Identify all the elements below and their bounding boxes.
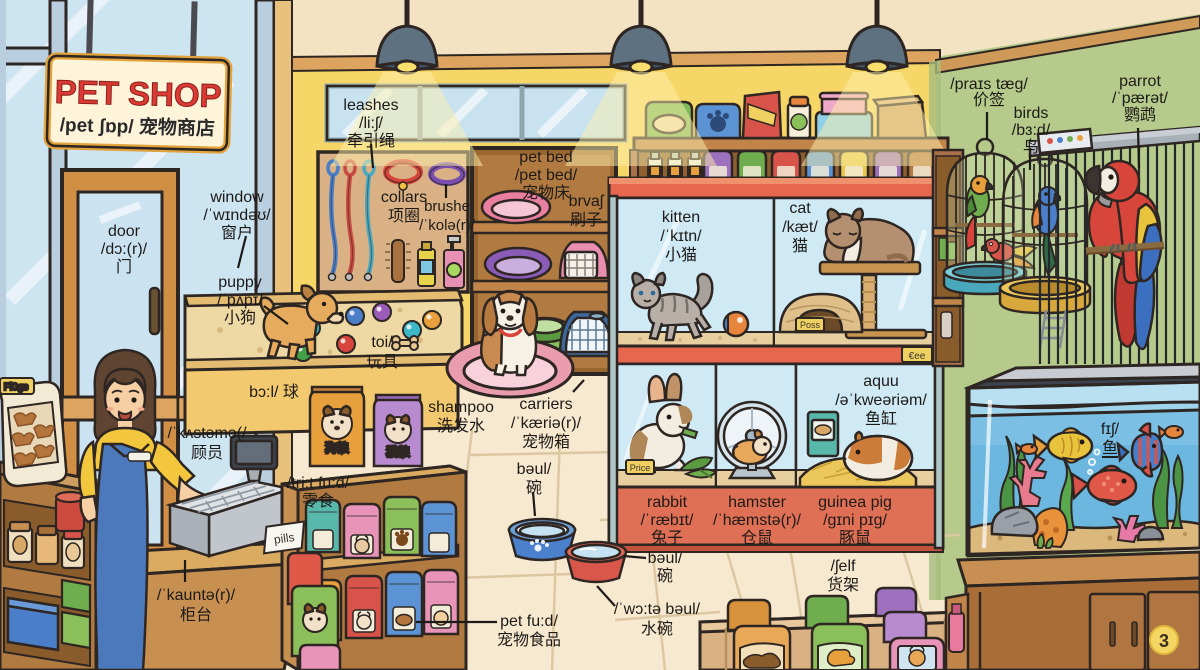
svg-text:Poss: Poss — [800, 320, 821, 330]
svg-text:玩具: 玩具 — [366, 354, 398, 371]
svg-text:guinea pig: guinea pig — [818, 494, 892, 511]
svg-text:door: door — [108, 223, 141, 240]
svg-text:kitten: kitten — [662, 209, 700, 226]
svg-text:/ˈkʌstəmə(/: /ˈkʌstəmə(/ — [167, 425, 247, 442]
svg-text:豚鼠: 豚鼠 — [839, 529, 871, 547]
svg-text:/ʃelf: /ʃelf — [831, 558, 856, 575]
svg-text:aquu: aquu — [863, 373, 899, 390]
svg-text:小狗: 小狗 — [224, 309, 256, 327]
svg-text:/praɪs tæg/: /praɪs tæg/ — [950, 76, 1028, 93]
svg-text:/ˈkæriə(r)/: /ˈkæriə(r)/ — [511, 415, 582, 432]
svg-text:cat: cat — [789, 200, 811, 217]
svg-text:bəul/: bəul/ — [517, 461, 552, 478]
svg-text:3: 3 — [1159, 631, 1169, 651]
svg-text:/gɪni pɪg/: /gɪni pɪg/ — [823, 512, 887, 529]
svg-text:项圈: 项圈 — [388, 207, 420, 225]
svg-text:/ˈwɪndəʊ/: /ˈwɪndəʊ/ — [203, 207, 271, 224]
svg-text:零食: 零食 — [302, 492, 334, 510]
svg-text:窗户: 窗户 — [221, 224, 253, 242]
svg-text:bəul/: bəul/ — [648, 550, 683, 567]
svg-text:Fl0gs: Fl0gs — [4, 382, 28, 393]
svg-text:/tri:t fu:d/: /tri:t fu:d/ — [287, 475, 350, 492]
svg-text:collars: collars — [381, 189, 427, 206]
svg-text:/ˈpærət/: /ˈpærət/ — [1112, 90, 1169, 107]
svg-text:brvaʃ: brvaʃ — [569, 193, 605, 210]
svg-text:/ˈpʌpɪ/: /ˈpʌpɪ/ — [217, 292, 263, 309]
svg-text:Price: Price — [630, 463, 651, 473]
svg-text:猫粮: 猫粮 — [386, 444, 410, 459]
svg-text:牵引绳: 牵引绳 — [347, 132, 395, 150]
svg-text:/li:ʃ/: /li:ʃ/ — [359, 115, 384, 132]
svg-text:宠物床: 宠物床 — [522, 184, 570, 202]
svg-text:rabbit: rabbit — [647, 494, 688, 511]
svg-text:€ee: €ee — [909, 351, 926, 362]
svg-text:window: window — [209, 189, 264, 206]
svg-text:parrot: parrot — [1119, 73, 1161, 90]
svg-text:carriers: carriers — [519, 396, 572, 413]
svg-text:狗粮: 狗粮 — [325, 440, 349, 455]
svg-text:价签: 价签 — [973, 91, 1005, 109]
svg-text:门: 门 — [116, 258, 132, 276]
svg-text:/ˈkolə(r)/: /ˈkolə(r)/ — [419, 217, 476, 234]
svg-text:柜台: 柜台 — [180, 606, 212, 624]
svg-text:pet bed: pet bed — [519, 149, 572, 166]
svg-text:/pet bed/: /pet bed/ — [515, 167, 578, 184]
svg-text:顾员: 顾员 — [191, 444, 223, 462]
svg-text:兔子: 兔子 — [651, 529, 683, 547]
svg-text:leashes: leashes — [343, 97, 398, 114]
svg-text:水碗: 水碗 — [641, 620, 673, 638]
svg-text:宠物食品: 宠物食品 — [497, 631, 561, 649]
svg-text:/əˈkweəriəm/: /əˈkweəriəm/ — [835, 392, 927, 409]
svg-text:/ˈkɪtn/: /ˈkɪtn/ — [660, 228, 702, 245]
svg-text:/dɔ:(r)/: /dɔ:(r)/ — [101, 241, 148, 258]
svg-text:刷子: 刷子 — [570, 211, 602, 229]
svg-text:宠物箱: 宠物箱 — [522, 433, 570, 451]
svg-text:碗: 碗 — [526, 479, 542, 497]
svg-text:仓鼠: 仓鼠 — [741, 529, 773, 547]
svg-text:pet fu:d/: pet fu:d/ — [500, 613, 558, 630]
svg-text:鹦鹉: 鹦鹉 — [1124, 106, 1156, 124]
svg-text:pills: pills — [273, 530, 295, 547]
svg-text:toi/: toi/ — [371, 334, 393, 351]
svg-text:洗发水: 洗发水 — [437, 417, 485, 435]
svg-text:/ˈwɔ:tə bəul/: /ˈwɔ:tə bəul/ — [614, 601, 701, 618]
svg-text:鱼: 鱼 — [1102, 439, 1118, 457]
svg-text:猫: 猫 — [792, 237, 808, 255]
svg-text:shampoo: shampoo — [428, 399, 494, 416]
svg-text:bɔ:l/ 球: bɔ:l/ 球 — [249, 383, 299, 401]
svg-text:hamster: hamster — [728, 494, 786, 511]
svg-text:鱼缸: 鱼缸 — [865, 409, 897, 428]
svg-text:货架: 货架 — [827, 576, 859, 594]
svg-text:PET SHOP: PET SHOP — [54, 73, 222, 114]
svg-text:小猫: 小猫 — [665, 246, 697, 264]
svg-text:birds: birds — [1014, 105, 1049, 122]
svg-text:/kæt/: /kæt/ — [782, 219, 818, 236]
svg-text:鸟: 鸟 — [1023, 138, 1039, 156]
svg-text:/ˈræbɪt/: /ˈræbɪt/ — [641, 512, 694, 529]
svg-text:/bɜ:d/: /bɜ:d/ — [1012, 122, 1051, 139]
svg-text:fɪʃ/: fɪʃ/ — [1101, 421, 1120, 438]
svg-text:brushe: brushe — [424, 198, 470, 215]
svg-text:puppy: puppy — [218, 274, 262, 291]
svg-text:/ˈkauntə(r)/: /ˈkauntə(r)/ — [157, 587, 236, 604]
svg-text:碗: 碗 — [657, 567, 673, 585]
svg-text:/ˈhæmstə(r)/: /ˈhæmstə(r)/ — [713, 512, 802, 529]
